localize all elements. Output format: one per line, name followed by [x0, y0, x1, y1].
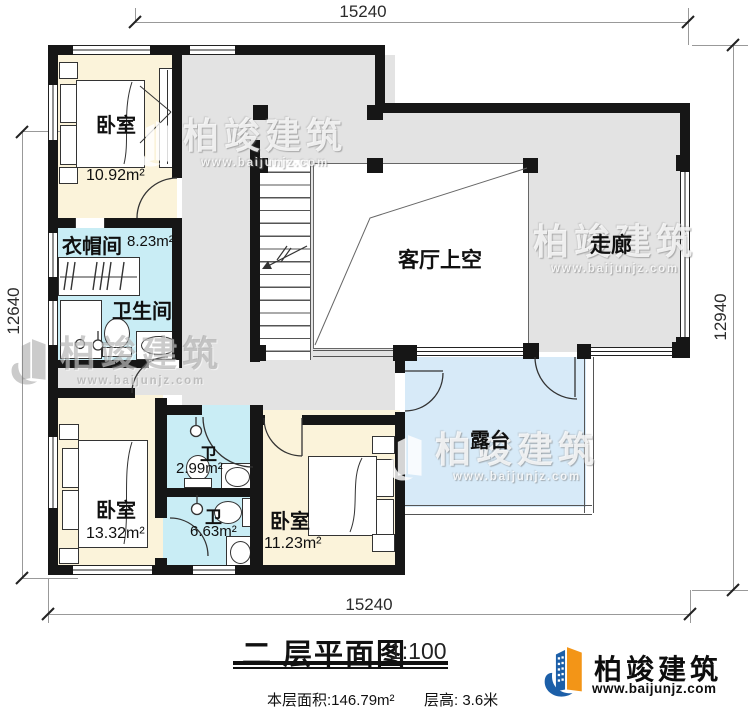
- nightstand: [372, 534, 395, 552]
- bed-headboard: [60, 84, 77, 123]
- column: [676, 155, 690, 171]
- title-underline: [233, 667, 448, 669]
- sink-basin: [230, 541, 251, 564]
- wall: [48, 45, 58, 85]
- column: [367, 105, 383, 120]
- dimension-line-left: [22, 132, 23, 578]
- extension-line: [692, 45, 748, 46]
- wall: [48, 277, 58, 301]
- wall: [150, 45, 190, 55]
- wall: [48, 388, 135, 398]
- wall: [48, 218, 75, 228]
- wall: [302, 415, 405, 425]
- window: [48, 85, 58, 140]
- wardrobe-divider: [167, 70, 168, 164]
- wall: [172, 45, 182, 178]
- wall: [48, 360, 148, 368]
- staircase: [260, 160, 311, 360]
- room-label-corridor: 走廊: [590, 229, 632, 259]
- wall: [250, 140, 260, 362]
- terrace-railing: [405, 505, 592, 515]
- toilet-tank: [184, 478, 212, 488]
- room-label-bedroom-br: 卧室: [270, 505, 310, 534]
- brand-logo-icon: [543, 644, 591, 700]
- column: [577, 344, 591, 359]
- window: [680, 172, 690, 337]
- nightstand: [59, 424, 79, 440]
- terrace-railing: [584, 357, 594, 513]
- room-area-bath-mid: 6.63m²: [190, 523, 237, 540]
- title-underline: [233, 661, 448, 665]
- wall: [155, 405, 202, 415]
- wall: [375, 103, 690, 113]
- column: [672, 342, 690, 358]
- room-label-cloakroom: 衣帽间: [62, 230, 122, 259]
- wall: [163, 488, 250, 497]
- toilet-tank: [102, 347, 132, 357]
- wall: [155, 558, 167, 570]
- column: [253, 105, 268, 120]
- wall: [48, 565, 73, 575]
- window: [417, 347, 523, 356]
- room-area-bedroom-br: 11.23m²: [264, 535, 322, 553]
- wall: [235, 45, 385, 55]
- wall: [250, 405, 263, 565]
- bed-headboard: [62, 490, 79, 530]
- wall: [155, 398, 167, 518]
- bed: [308, 456, 377, 536]
- window: [48, 437, 58, 508]
- column: [250, 345, 266, 361]
- column: [523, 343, 539, 359]
- extension-line: [692, 590, 748, 591]
- bed-headboard: [60, 125, 77, 165]
- dimension-line-right: [733, 45, 734, 591]
- window: [48, 233, 58, 277]
- nightstand: [372, 436, 395, 454]
- room-label-bedroom-bl: 卧室: [96, 494, 136, 523]
- shower-tray: [60, 300, 102, 359]
- closet-rack: [58, 257, 140, 296]
- bed-headboard: [376, 499, 394, 535]
- extension-line: [48, 578, 49, 623]
- room-label-terrace: 露台: [470, 424, 510, 453]
- floor-area-text: 本层面积:146.79m²: [267, 689, 395, 710]
- nightstand: [59, 548, 79, 564]
- extension-line: [22, 578, 78, 579]
- extension-line: [688, 8, 689, 45]
- bed-headboard: [62, 448, 79, 488]
- room-label-bathroom: 卫生间: [112, 295, 172, 324]
- window: [190, 45, 235, 55]
- extension-line: [135, 8, 136, 22]
- dimension-left: 12640: [4, 280, 24, 342]
- wall: [103, 218, 182, 228]
- column: [367, 158, 383, 173]
- room-area-bath-small: 2.99m²: [176, 460, 223, 477]
- nightstand: [59, 62, 78, 79]
- walkway-edge: [313, 350, 395, 357]
- wall: [395, 415, 405, 575]
- window: [591, 347, 672, 356]
- room-area-bedroom-bl: 13.32m²: [86, 525, 145, 543]
- brand-url: www.baijunjz.com: [592, 681, 717, 696]
- sink-basin: [225, 467, 250, 487]
- column: [253, 158, 268, 173]
- extension-line: [690, 590, 691, 623]
- room-area-cloakroom: 8.23m²: [127, 233, 174, 250]
- column: [393, 345, 417, 361]
- window: [73, 565, 152, 575]
- room-area-bedroom-tl: 10.92m²: [86, 167, 145, 185]
- dimension-bottom: 15240: [339, 595, 399, 615]
- floor-plan-canvas: 15240 15240 12640 12940: [0, 0, 750, 712]
- dimension-top: 15240: [333, 2, 393, 22]
- wall: [235, 565, 405, 575]
- door-opening: [75, 218, 105, 228]
- window: [48, 301, 58, 345]
- column: [523, 158, 538, 173]
- room-label-living-void: 客厅上空: [398, 244, 482, 274]
- window: [73, 45, 150, 55]
- window: [193, 565, 235, 575]
- room-label-bedroom-tl: 卧室: [96, 109, 136, 138]
- dimension-line-top: [135, 22, 688, 23]
- bed-headboard: [376, 459, 394, 497]
- floor-height-text: 层高: 3.6米: [424, 689, 498, 710]
- dimension-right: 12940: [711, 286, 731, 348]
- nightstand: [59, 167, 78, 184]
- door-opening: [148, 360, 180, 368]
